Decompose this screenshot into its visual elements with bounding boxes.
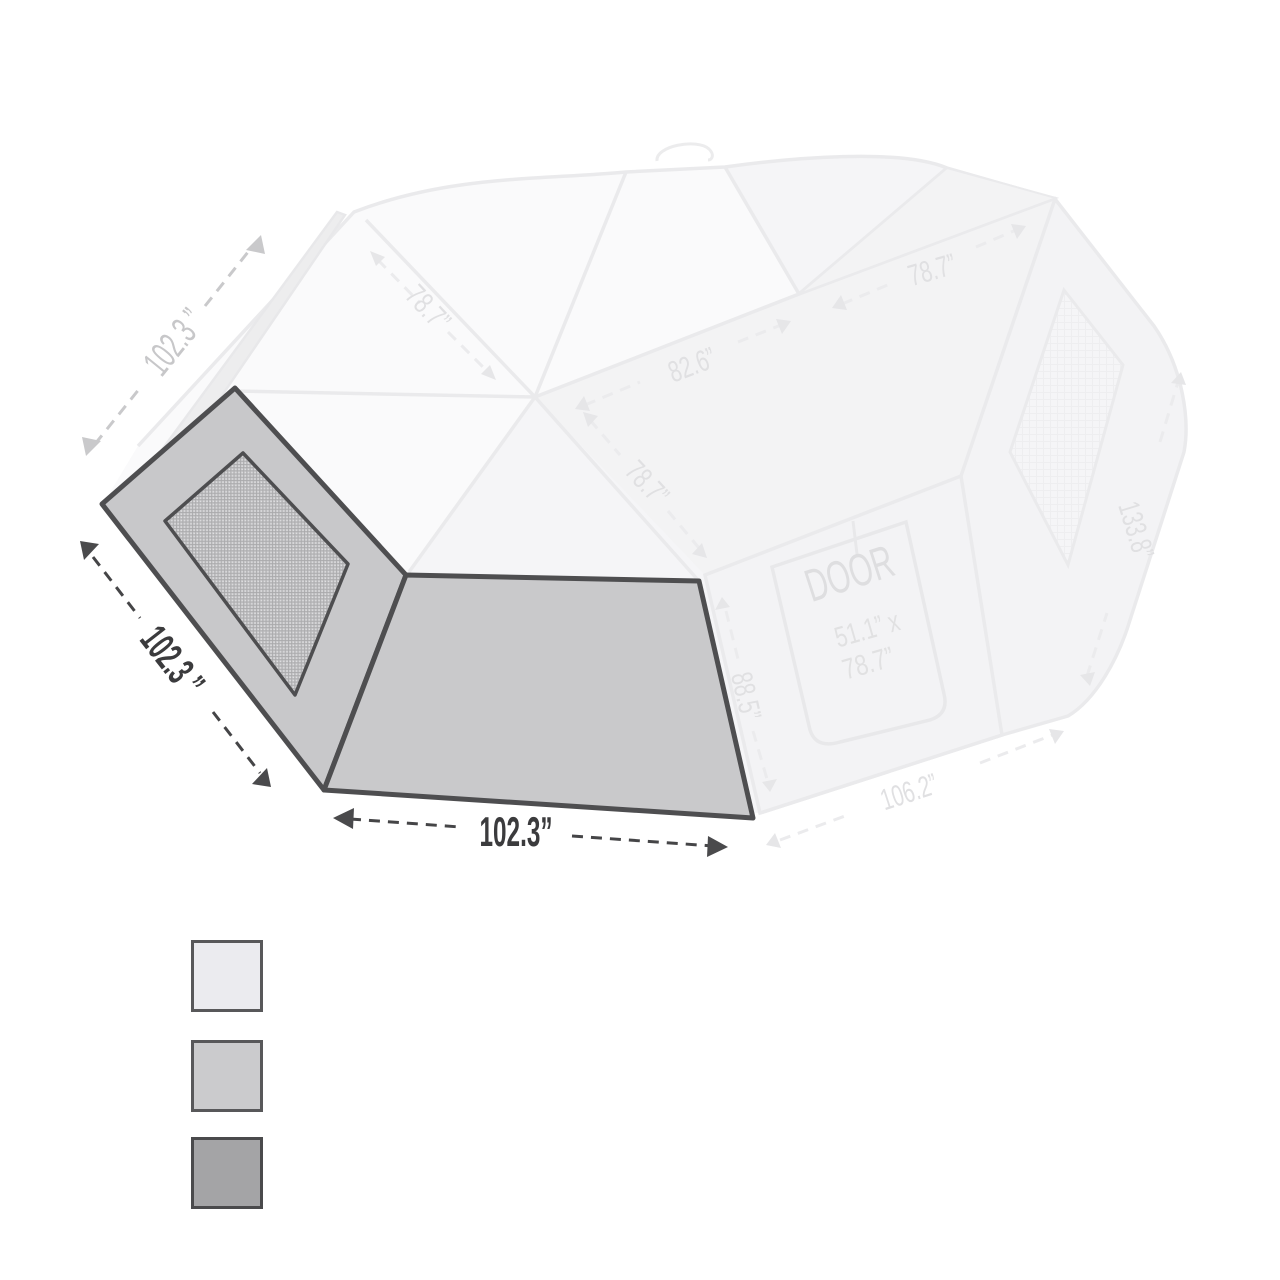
svg-text:102.3”: 102.3” — [480, 808, 553, 855]
